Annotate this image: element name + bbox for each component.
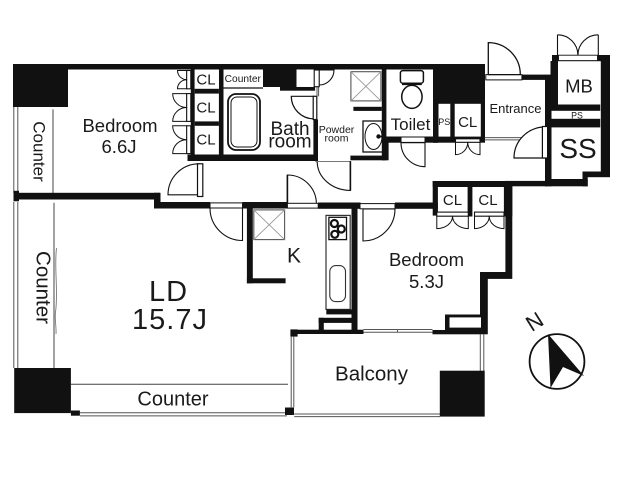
svg-text:Entrance: Entrance (489, 101, 541, 116)
svg-text:CL: CL (196, 132, 215, 149)
svg-text:6.6J: 6.6J (102, 136, 137, 157)
svg-text:Counter: Counter (137, 389, 208, 411)
svg-text:CL: CL (458, 114, 477, 131)
svg-text:Counter: Counter (30, 121, 49, 182)
svg-text:Balcony: Balcony (335, 363, 409, 386)
svg-text:15.7J: 15.7J (132, 304, 208, 336)
svg-text:5.3J: 5.3J (409, 271, 444, 292)
svg-text:CL: CL (196, 72, 215, 89)
svg-text:room: room (268, 132, 311, 153)
svg-text:Bedroom: Bedroom (82, 115, 157, 136)
svg-text:K: K (287, 245, 301, 268)
svg-text:CL: CL (478, 192, 497, 209)
svg-text:SS: SS (559, 133, 596, 164)
svg-text:Counter: Counter (225, 74, 262, 85)
svg-text:Counter: Counter (32, 251, 55, 324)
svg-text:room: room (325, 133, 349, 145)
svg-text:PS: PS (571, 110, 583, 120)
svg-text:Toilet: Toilet (391, 115, 431, 134)
svg-text:PS: PS (438, 117, 450, 127)
svg-text:Bedroom: Bedroom (389, 249, 464, 270)
svg-text:MB: MB (565, 76, 593, 97)
svg-text:CL: CL (443, 192, 462, 209)
svg-text:CL: CL (196, 100, 215, 117)
